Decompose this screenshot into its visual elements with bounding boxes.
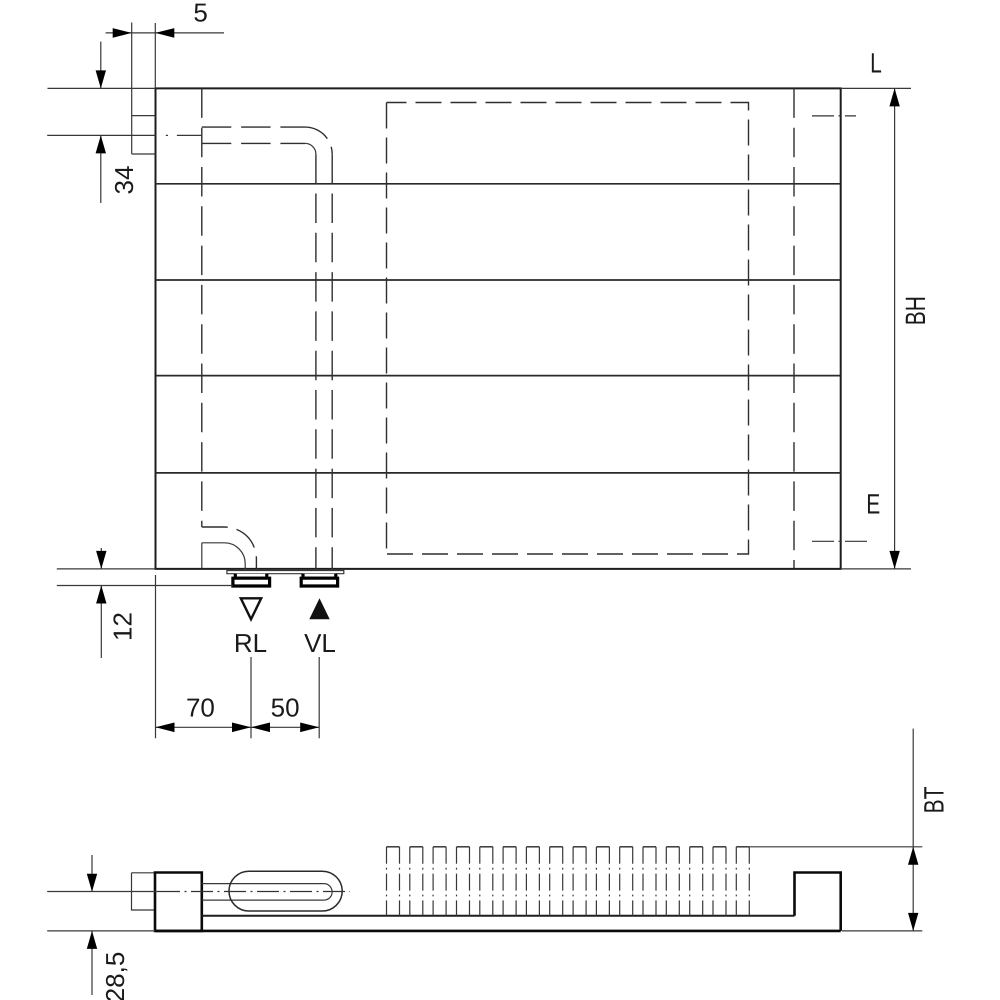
svg-text:5: 5	[193, 0, 207, 28]
svg-text:50: 50	[271, 692, 300, 722]
svg-text:BH: BH	[900, 296, 931, 325]
svg-text:28,5: 28,5	[100, 952, 130, 1000]
svg-text:E: E	[866, 489, 880, 520]
svg-text:70: 70	[186, 692, 215, 722]
svg-text:L: L	[870, 48, 882, 79]
svg-text:RL: RL	[234, 628, 267, 658]
svg-text:VL: VL	[304, 628, 336, 658]
svg-text:12: 12	[108, 612, 138, 641]
svg-text:BT: BT	[919, 787, 950, 814]
svg-text:34: 34	[109, 166, 139, 195]
